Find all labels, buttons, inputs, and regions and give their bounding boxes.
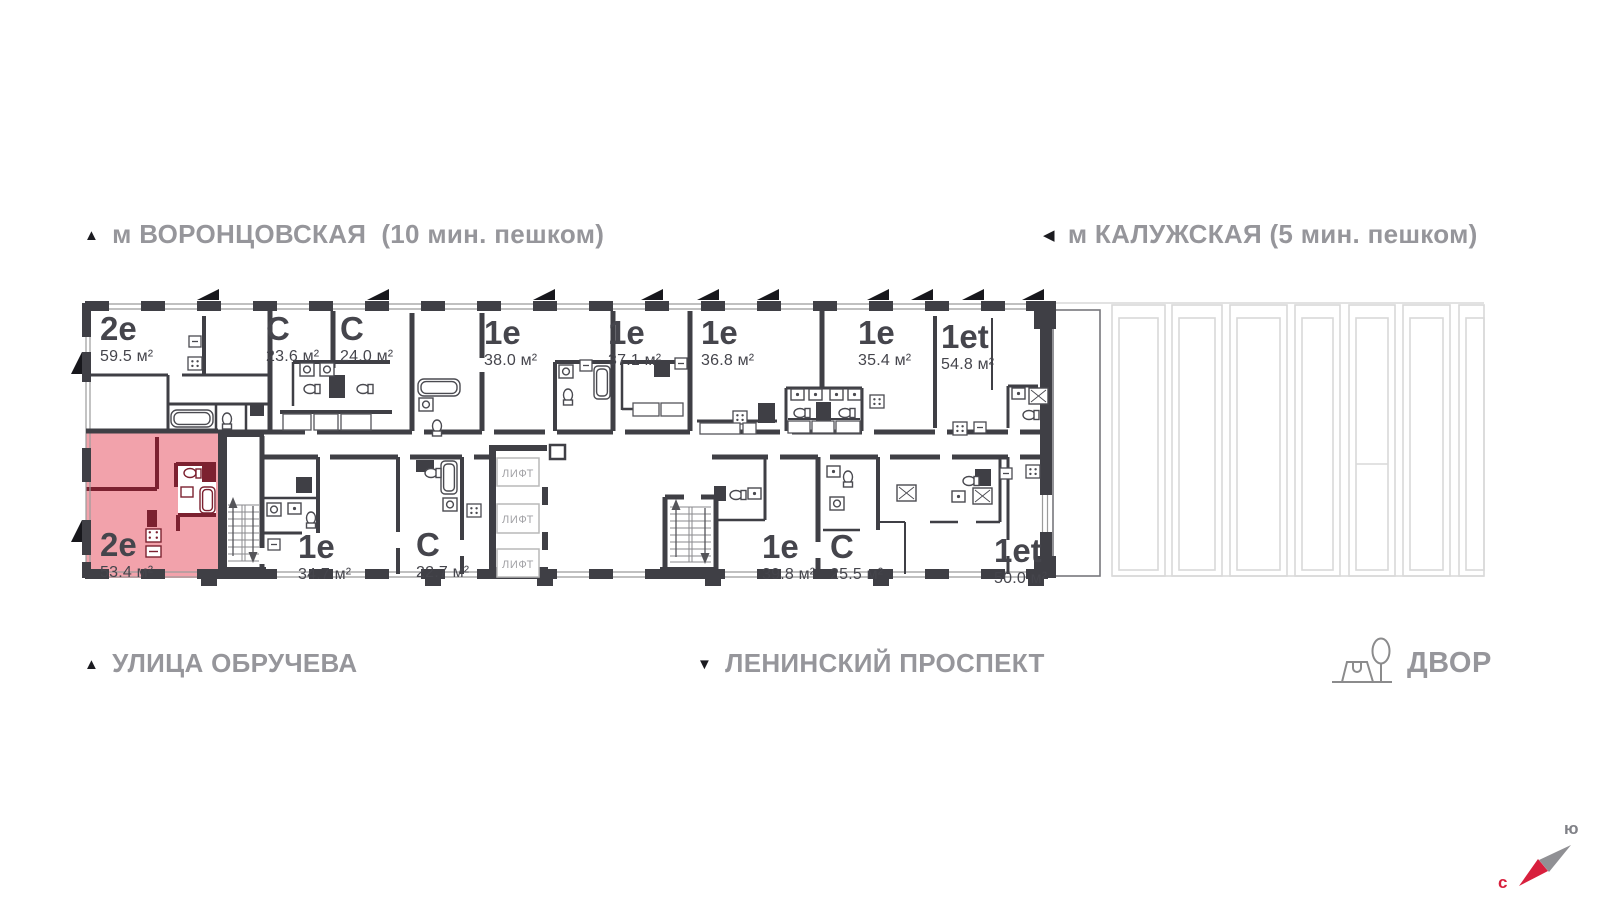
apartment-label[interactable]: С 24.0 м² (340, 312, 393, 365)
apartment-area: 22.7 м² (416, 565, 469, 581)
apartment-label[interactable]: 1е 34.7 м² (298, 530, 351, 583)
apartment-type: 1е (484, 316, 537, 349)
compass-needle (1519, 845, 1571, 886)
apartment-label[interactable]: 1е 35.4 м² (858, 316, 911, 369)
apartment-area: 35.4 м² (858, 353, 911, 369)
street-label-obrucheva: ▲ УЛИЦА ОБРУЧЕВА (84, 648, 357, 679)
compass-north-label: с (1498, 874, 1507, 891)
street-label-text: УЛИЦА ОБРУЧЕВА (112, 648, 357, 679)
down-triangle-icon: ▼ (697, 657, 712, 672)
metro-label-text: м ВОРОНЦОВСКАЯ (10 мин. пешком) (112, 219, 604, 250)
apartment-type: С (416, 528, 469, 561)
apartment-type: 1е (762, 530, 815, 563)
yard-label: ДВОР (1328, 632, 1492, 680)
apartment-label[interactable]: 1е 36.8 м² (701, 316, 754, 369)
floor-plan-svg (0, 0, 1600, 920)
apartment-label[interactable]: С 25.5 м² (830, 530, 883, 583)
apartment-area: 34.7 м² (298, 567, 351, 583)
apartment-label[interactable]: 1е 39.8 м² (762, 530, 815, 583)
metro-label-vorontsovskaya: ▲ м ВОРОНЦОВСКАЯ (10 мин. пешком) (84, 219, 604, 250)
apartment-type: 1е (701, 316, 754, 349)
street-label-text: ЛЕНИНСКИЙ ПРОСПЕКТ (725, 648, 1045, 679)
apartment-type: 1е (298, 530, 351, 563)
apartment-label[interactable]: 1еt 54.8 м² (941, 320, 994, 373)
apartment-area: 37.1 м² (608, 353, 661, 369)
apartment-label[interactable]: 1еt 50.0 м² (994, 534, 1047, 587)
apartment-label-highlighted[interactable]: 2е 53.4 м² (100, 528, 153, 581)
apartment-type: С (266, 312, 319, 345)
apartment-area: 36.8 м² (701, 353, 754, 369)
staircase-2 (665, 497, 716, 572)
apartment-area: 39.8 м² (762, 567, 815, 583)
apartment-area: 24.0 м² (340, 349, 393, 365)
up-triangle-icon: ▲ (84, 228, 99, 243)
apartment-label[interactable]: 2е 59.5 м² (100, 312, 153, 365)
apartment-type: 1еt (994, 534, 1047, 567)
apartment-label[interactable]: 1е 37.1 м² (608, 316, 661, 369)
apartment-area: 25.5 м² (830, 567, 883, 583)
apartment-label[interactable]: 1е 38.0 м² (484, 316, 537, 369)
apartment-label[interactable]: С 23.6 м² (266, 312, 319, 365)
apartment-area: 54.8 м² (941, 357, 994, 373)
apartment-type: 2е (100, 528, 153, 561)
elevator-label: ЛИФТ (497, 552, 539, 578)
apartment-area: 38.0 м² (484, 353, 537, 369)
apartment-area: 50.0 м² (994, 571, 1047, 587)
apartment-type: 1е (608, 316, 661, 349)
street-label-leninsky: ▼ ЛЕНИНСКИЙ ПРОСПЕКТ (697, 648, 1045, 679)
apartment-type: С (340, 312, 393, 345)
left-triangle-icon: ◀ (1043, 228, 1055, 243)
staircase-1 (218, 433, 264, 574)
apartment-area: 23.6 м² (266, 349, 319, 365)
apartment-area: 59.5 м² (100, 349, 153, 365)
metro-label-text: м КАЛУЖСКАЯ (5 мин. пешком) (1068, 219, 1478, 250)
up-triangle-icon: ▲ (84, 657, 99, 672)
yard-label-text: ДВОР (1407, 649, 1492, 680)
floorplan-page: ▲ м ВОРОНЦОВСКАЯ (10 мин. пешком) ◀ м КА… (0, 0, 1600, 920)
metro-label-kaluzhskaya: ◀ м КАЛУЖСКАЯ (5 мин. пешком) (1043, 219, 1478, 250)
apartment-type: С (830, 530, 883, 563)
faded-wing (1048, 303, 1484, 576)
apartment-type: 2е (100, 312, 153, 345)
apartment-area: 53.4 м² (100, 565, 153, 581)
elevator-label: ЛИФТ (497, 461, 539, 487)
apartment-type: 1е (858, 316, 911, 349)
elevator-label: ЛИФТ (497, 507, 539, 533)
compass-south-label: ю (1564, 820, 1579, 837)
apartment-type: 1еt (941, 320, 994, 353)
apartment-label[interactable]: С 22.7 м² (416, 528, 469, 581)
